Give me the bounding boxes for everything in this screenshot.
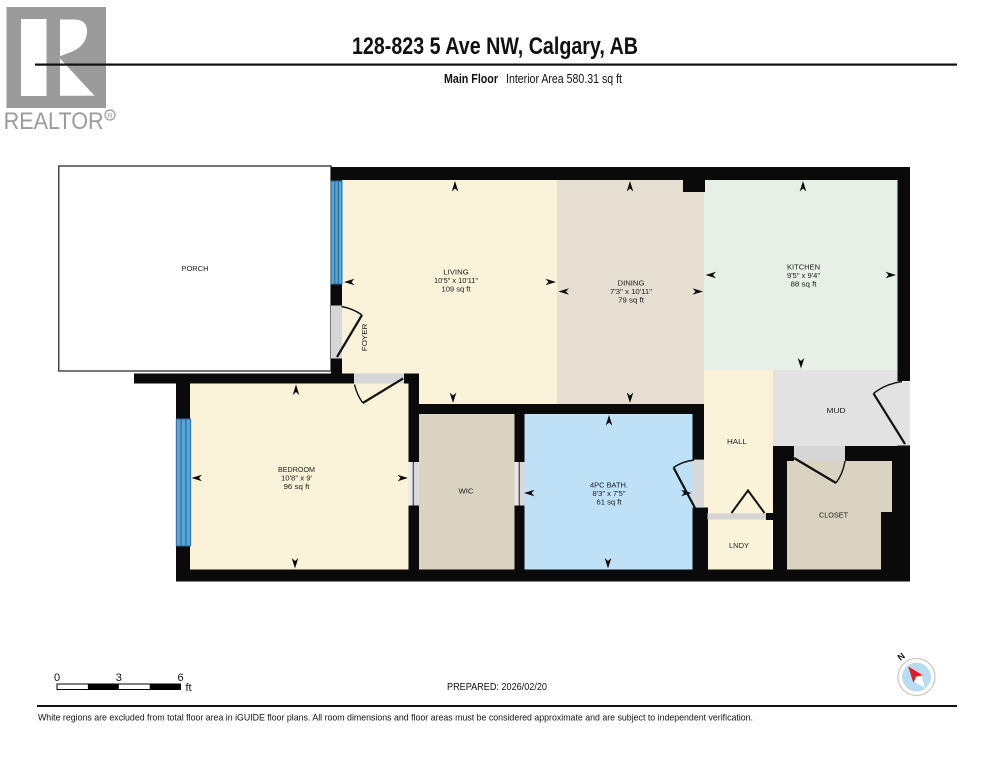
svg-text:KITCHEN: KITCHEN — [787, 263, 820, 272]
svg-text:96 sq ft: 96 sq ft — [284, 484, 310, 491]
svg-text:128-823 5 Ave NW, Calgary, AB: 128-823 5 Ave NW, Calgary, AB — [352, 33, 638, 60]
svg-text:Interior Area 580.31 sq ft: Interior Area 580.31 sq ft — [506, 72, 622, 86]
svg-text:10'5" x 10'11": 10'5" x 10'11" — [434, 278, 479, 285]
svg-text:4PC BATH.: 4PC BATH. — [590, 481, 628, 490]
svg-text:8'3" x 7'5": 8'3" x 7'5" — [593, 491, 627, 498]
svg-text:FOYER: FOYER — [360, 323, 369, 351]
svg-text:3: 3 — [116, 672, 122, 684]
svg-text:LIVING: LIVING — [443, 268, 469, 277]
svg-text:White regions are excluded fro: White regions are excluded from total fl… — [38, 713, 753, 723]
svg-text:10'8" x 9': 10'8" x 9' — [281, 476, 312, 483]
svg-text:LNDY: LNDY — [729, 541, 749, 550]
svg-text:61 sq ft: 61 sq ft — [597, 500, 622, 507]
svg-text:R: R — [107, 111, 113, 120]
svg-text:ft: ft — [186, 682, 192, 694]
svg-text:WIC: WIC — [459, 487, 475, 496]
svg-text:9'5" x 9'4": 9'5" x 9'4" — [787, 273, 821, 280]
svg-text:PREPARED: 2026/02/20: PREPARED: 2026/02/20 — [447, 681, 547, 693]
svg-text:0: 0 — [54, 672, 60, 684]
svg-text:HALL: HALL — [727, 437, 747, 446]
svg-text:MUD: MUD — [827, 406, 847, 415]
svg-text:7'3" x 10'11": 7'3" x 10'11" — [610, 289, 653, 296]
svg-text:BEDROOM: BEDROOM — [278, 465, 315, 474]
svg-text:109 sq ft: 109 sq ft — [442, 287, 471, 294]
svg-text:6: 6 — [177, 672, 183, 684]
svg-text:REALTOR: REALTOR — [4, 108, 104, 135]
svg-text:79 sq ft: 79 sq ft — [618, 298, 644, 305]
svg-text:PORCH: PORCH — [182, 264, 209, 273]
svg-text:88 sq ft: 88 sq ft — [791, 282, 817, 289]
svg-text:CLOSET: CLOSET — [819, 511, 848, 520]
svg-text:Main Floor: Main Floor — [444, 72, 498, 86]
svg-text:DINING: DINING — [618, 279, 645, 288]
